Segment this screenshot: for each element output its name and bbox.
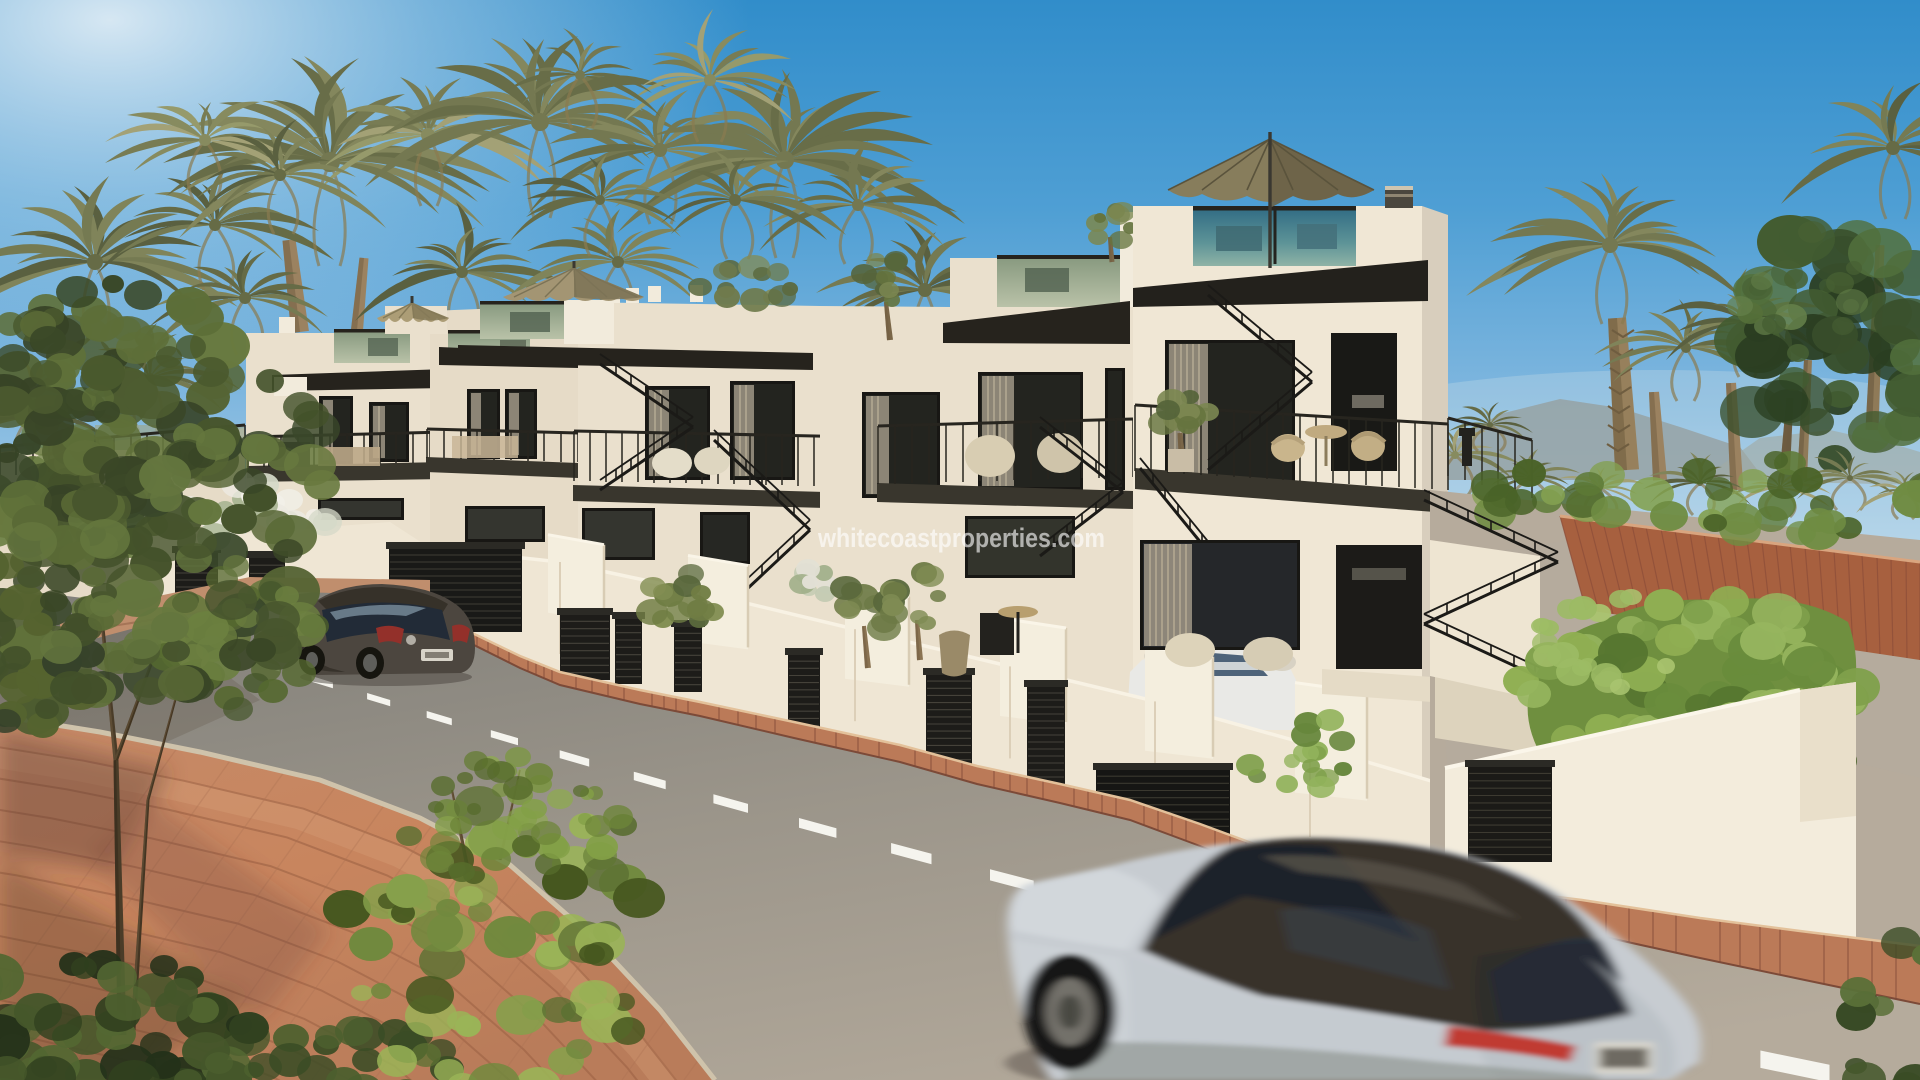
svg-text:whitecoastproperties.com: whitecoastproperties.com bbox=[817, 523, 1105, 553]
